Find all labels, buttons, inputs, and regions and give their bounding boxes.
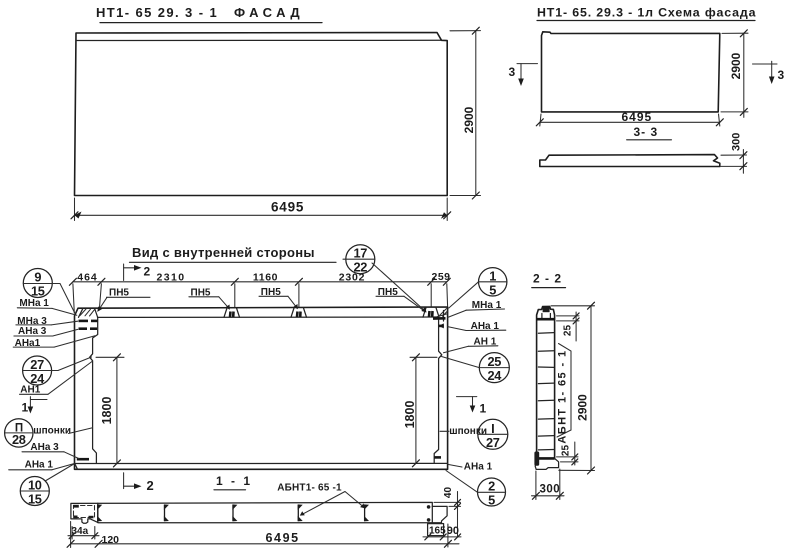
svg-text:3- 3: 3- 3 [634,125,659,139]
svg-text:2: 2 [147,478,154,493]
svg-text:25: 25 [487,354,501,369]
svg-text:3: 3 [509,65,516,79]
svg-text:165: 165 [429,525,446,536]
svg-text:шпонки: шпонки [449,426,487,437]
svg-text:25: 25 [563,325,574,337]
svg-text:464: 464 [77,272,98,284]
svg-text:ФАСАД: ФАСАД [234,5,304,20]
svg-text:1: 1 [489,268,496,283]
svg-text:2: 2 [488,479,495,494]
svg-text:1800: 1800 [403,401,417,429]
svg-text:2900: 2900 [462,106,476,133]
svg-text:1160: 1160 [253,272,278,284]
svg-text:5: 5 [488,493,495,508]
svg-text:34а: 34а [72,526,89,537]
svg-text:40: 40 [443,487,454,499]
svg-text:6495: 6495 [271,200,304,215]
svg-text:24: 24 [487,368,502,383]
svg-text:шпонки: шпонки [33,426,71,437]
svg-text:17: 17 [353,246,367,261]
svg-text:259: 259 [431,271,450,283]
svg-text:I: I [491,421,494,436]
svg-text:АБНТ 1- 65 - 1: АБНТ 1- 65 - 1 [557,349,569,443]
svg-text:5: 5 [489,282,496,297]
svg-text:27: 27 [486,435,500,450]
svg-text:АБНТ1- 65 -1: АБНТ1- 65 -1 [277,483,342,494]
svg-text:6495: 6495 [622,110,653,124]
svg-text:МНа 1: МНа 1 [19,298,49,309]
svg-text:АНа 3: АНа 3 [30,442,59,453]
svg-text:25: 25 [560,445,571,457]
svg-text:27: 27 [30,357,44,372]
svg-text:300: 300 [731,133,743,151]
svg-text:АНа 1: АНа 1 [25,460,54,471]
svg-text:3: 3 [778,68,785,82]
svg-text:Вид с внутренней стороны: Вид с внутренней стороны [132,245,315,260]
svg-text:28: 28 [12,432,26,447]
svg-text:2 - 2: 2 - 2 [533,272,562,286]
svg-text:АНа 1: АНа 1 [464,462,493,473]
svg-text:1: 1 [480,402,487,416]
svg-text:90: 90 [447,525,459,537]
svg-text:9: 9 [34,270,41,285]
svg-text:НТ1- 65. 29.3 - 1л Схема фасад: НТ1- 65. 29.3 - 1л Схема фасада [537,6,756,20]
svg-text:15: 15 [28,492,42,507]
svg-text:2310: 2310 [157,272,186,284]
svg-text:300: 300 [540,484,561,496]
svg-text:2900: 2900 [576,394,590,421]
svg-text:10: 10 [28,478,42,493]
svg-text:1: 1 [22,401,29,415]
svg-text:15: 15 [31,284,45,299]
svg-text:2900: 2900 [729,52,743,79]
svg-text:1800: 1800 [100,397,114,425]
svg-text:2: 2 [144,265,151,279]
svg-text:22: 22 [353,260,367,275]
svg-text:НТ1- 65 29. 3 - 1: НТ1- 65 29. 3 - 1 [96,5,218,20]
svg-text:6495: 6495 [266,531,300,545]
svg-text:1 - 1: 1 - 1 [216,474,253,488]
svg-text:120: 120 [102,534,120,546]
